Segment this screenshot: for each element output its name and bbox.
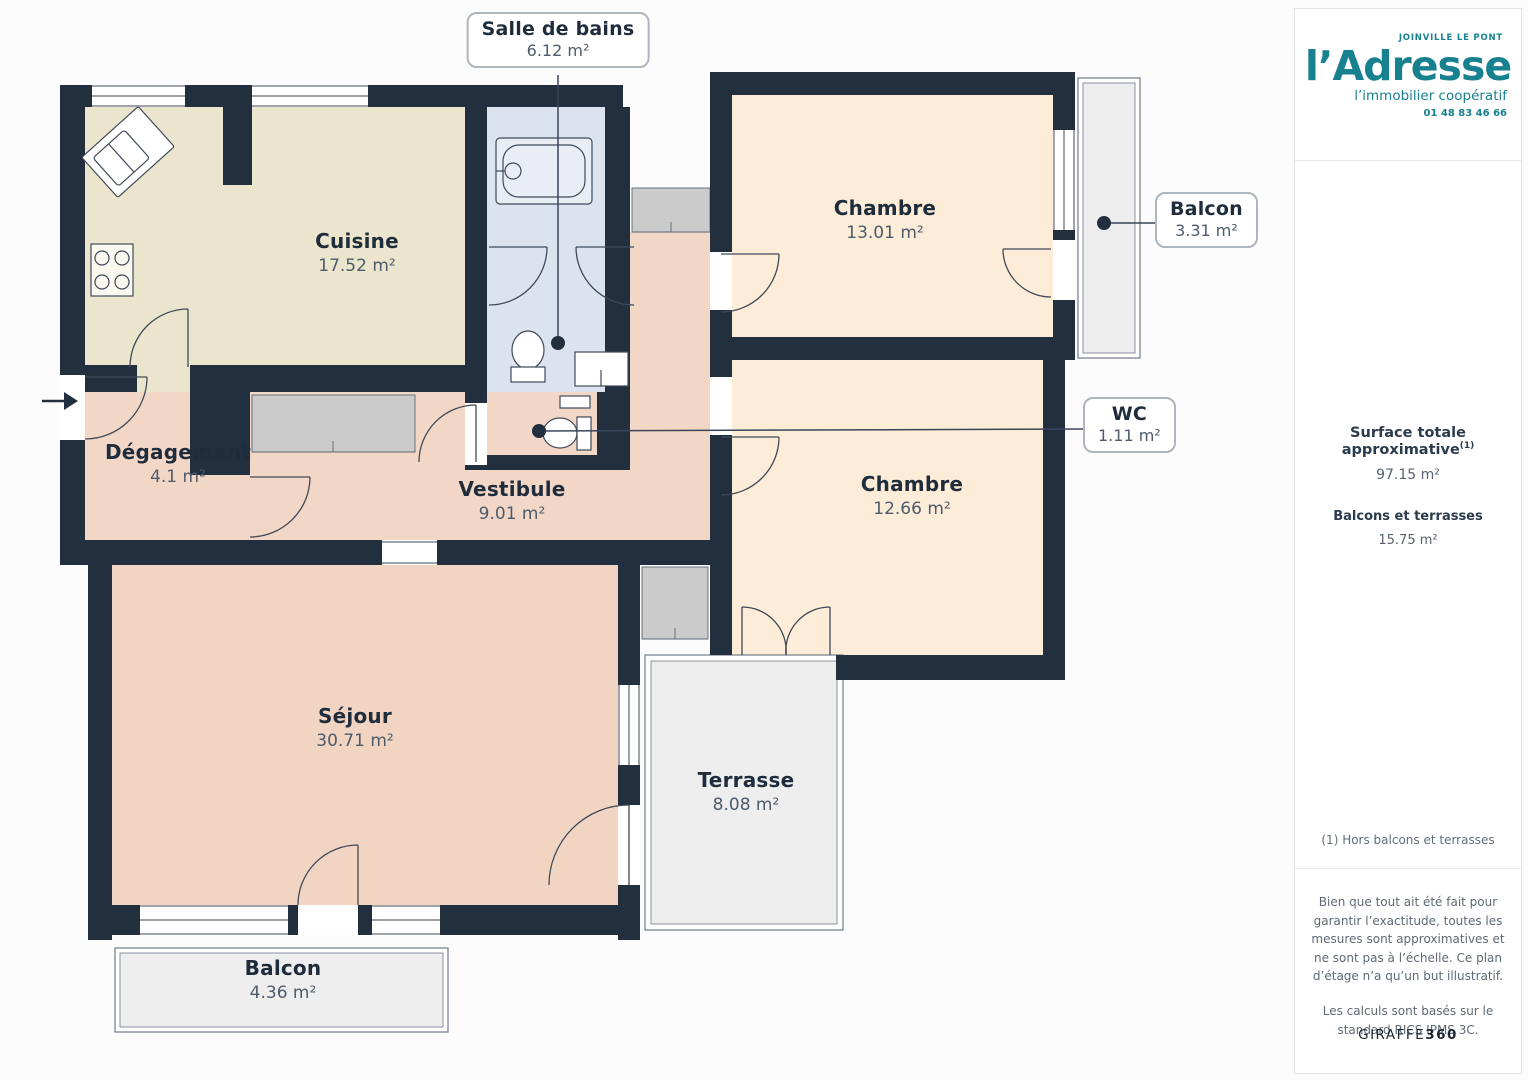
surface-total-value: 97.15 m²	[1295, 467, 1521, 483]
giraffe360-suffix: 360	[1425, 1027, 1458, 1043]
room-label-vestibule: Vestibule 9.01 m²	[458, 477, 565, 524]
room-name: Chambre	[861, 472, 963, 496]
room-area: 6.12 m²	[482, 41, 635, 60]
room-area: 4.1 m²	[105, 467, 251, 487]
room-name: Dégagement	[105, 440, 251, 464]
sink-icon-sdb	[575, 352, 628, 386]
sidebar-divider-top	[1295, 160, 1521, 161]
room-name: Balcon	[1170, 198, 1243, 220]
agency-phone: 01 48 83 46 66	[1295, 108, 1521, 119]
surface-total-text: Surface totale approximative	[1342, 425, 1466, 458]
callout-salle-de-bains: Salle de bains 6.12 m²	[467, 12, 650, 68]
disclaimer-block: Bien que tout ait été fait pour garantir…	[1295, 893, 1521, 1039]
balconies-value: 15.75 m²	[1295, 533, 1521, 548]
disclaimer-text: Bien que tout ait été fait pour garantir…	[1311, 893, 1505, 986]
surface-total-footnote-ref: (1)	[1460, 441, 1475, 451]
room-area: 1.11 m²	[1098, 426, 1161, 445]
callout-balcon: Balcon 3.31 m²	[1155, 192, 1258, 248]
info-sidebar: JOINVILLE LE PONT l’Adresse l’immobilier…	[1294, 8, 1522, 1074]
room-area: 8.08 m²	[698, 795, 795, 815]
room-area: 9.01 m²	[458, 504, 565, 524]
room-label-degagement: Dégagement 4.1 m²	[105, 440, 251, 487]
surface-summary: Surface totale approximative(1) 97.15 m²…	[1295, 425, 1521, 548]
cooktop-icon	[91, 244, 133, 296]
bathtub-icon	[496, 138, 592, 204]
room-area: 12.66 m²	[861, 499, 963, 519]
surface-total-label: Surface totale approximative(1)	[1295, 425, 1521, 458]
room-area: 17.52 m²	[315, 256, 399, 276]
footnote: (1) Hors balcons et terrasses	[1295, 833, 1521, 847]
agency-tagline: l’immobilier coopératif	[1295, 88, 1521, 104]
room-label-terrasse: Terrasse 8.08 m²	[698, 768, 795, 815]
room-area: 3.31 m²	[1170, 221, 1243, 240]
giraffe360-name: GIRAFFE	[1358, 1027, 1425, 1043]
room-label-chambre-1: Chambre 13.01 m²	[834, 196, 936, 243]
giraffe360-logo: GIRAFFE360	[1295, 1027, 1521, 1043]
room-name: Vestibule	[458, 477, 565, 501]
room-name: WC	[1098, 403, 1161, 425]
room-label-chambre-2: Chambre 12.66 m²	[861, 472, 963, 519]
room-area: 13.01 m²	[834, 223, 936, 243]
balconies-label: Balcons et terrasses	[1295, 509, 1521, 524]
room-name: Cuisine	[315, 229, 399, 253]
agency-brand: l’Adresse	[1295, 45, 1521, 88]
room-name: Balcon	[245, 956, 322, 980]
room-area: 30.71 m²	[316, 731, 393, 751]
room-label-cuisine: Cuisine 17.52 m²	[315, 229, 399, 276]
floor-plan-page: Cuisine 17.52 m² Chambre 13.01 m² Chambr…	[0, 0, 1528, 1080]
room-name: Séjour	[316, 704, 393, 728]
room-name: Salle de bains	[482, 18, 635, 40]
room-label-sejour: Séjour 30.71 m²	[316, 704, 393, 751]
callout-wc: WC 1.11 m²	[1083, 397, 1176, 453]
room-name: Chambre	[834, 196, 936, 220]
room-name: Terrasse	[698, 768, 795, 792]
room-label-balcon-bas: Balcon 4.36 m²	[245, 956, 322, 1003]
agency-logo: JOINVILLE LE PONT l’Adresse l’immobilier…	[1295, 33, 1521, 119]
toilet-icon-sdb	[511, 331, 545, 382]
room-area: 4.36 m²	[245, 983, 322, 1003]
sidebar-divider-bottom	[1295, 868, 1521, 869]
